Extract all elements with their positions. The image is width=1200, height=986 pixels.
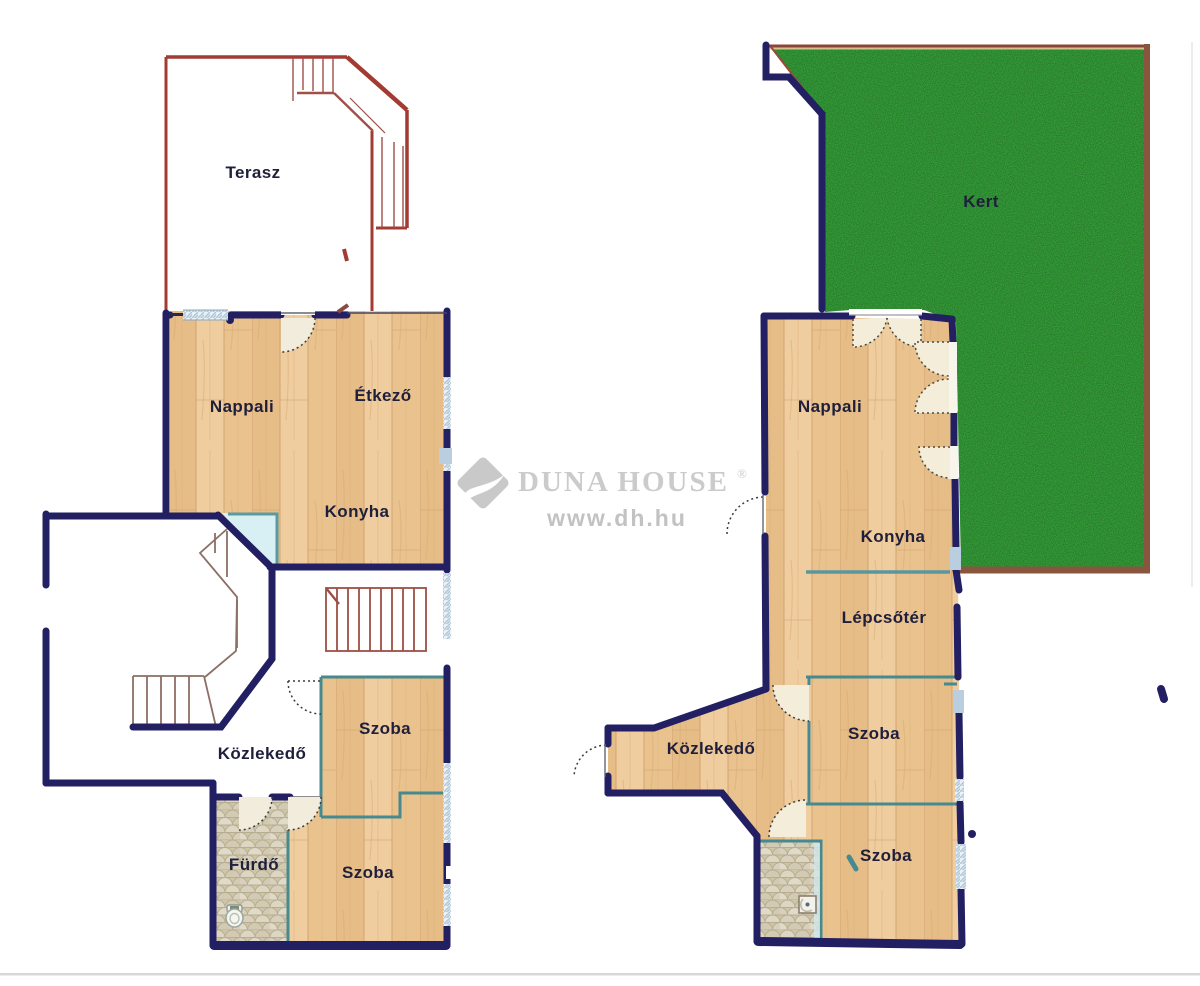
svg-text:Szoba: Szoba: [359, 719, 411, 738]
svg-text:Konyha: Konyha: [861, 527, 926, 546]
svg-text:Terasz: Terasz: [225, 163, 280, 182]
svg-text:Nappali: Nappali: [798, 397, 862, 416]
svg-text:Kert: Kert: [963, 192, 999, 211]
svg-text:®: ®: [737, 466, 747, 481]
svg-text:Lépcsőtér: Lépcsőtér: [842, 608, 927, 627]
svg-text:Konyha: Konyha: [325, 502, 390, 521]
svg-text:Szoba: Szoba: [860, 846, 912, 865]
svg-text:Szoba: Szoba: [342, 863, 394, 882]
svg-text:DUNA HOUSE: DUNA HOUSE: [518, 466, 729, 498]
svg-text:Nappali: Nappali: [210, 397, 274, 416]
svg-text:Közlekedő: Közlekedő: [667, 739, 756, 758]
svg-text:Étkező: Étkező: [354, 386, 411, 405]
svg-text:Szoba: Szoba: [848, 724, 900, 743]
svg-text:www.dh.hu: www.dh.hu: [546, 505, 687, 531]
svg-text:Közlekedő: Közlekedő: [218, 744, 307, 763]
svg-text:Fürdő: Fürdő: [229, 855, 279, 874]
